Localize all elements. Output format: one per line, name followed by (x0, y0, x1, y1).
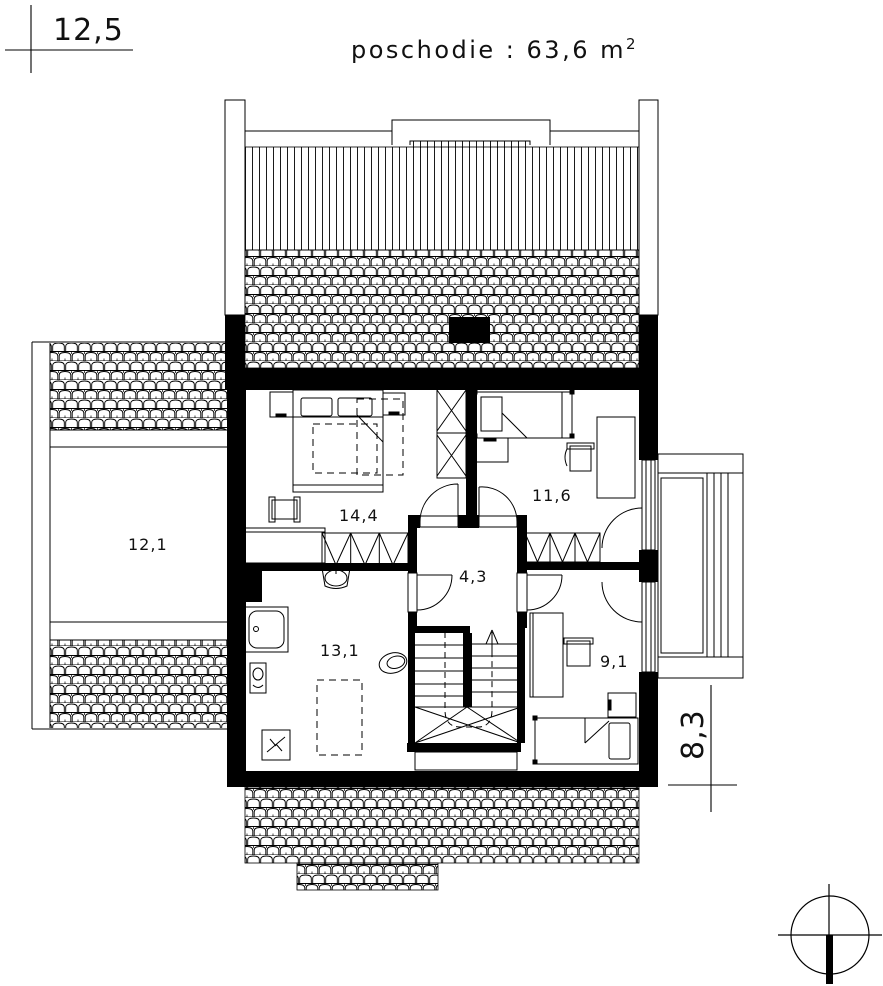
balcony (658, 454, 743, 678)
wall-stair-bottom (407, 743, 521, 752)
room-label-14-4: 14,4 (339, 506, 379, 525)
door-swings (417, 484, 642, 622)
desk (597, 417, 635, 498)
balcony-railing (707, 473, 728, 657)
wall-right-column (639, 315, 658, 368)
chimney-right-outline (639, 100, 658, 315)
floor-plan-drawing: poschodie : 63,6 m2 12,5 8,3 12,1 (0, 0, 883, 986)
shower-drain (254, 627, 259, 632)
wall-room9-north (517, 562, 639, 570)
dimension-width-label: 12,5 (53, 13, 124, 48)
door-arc-balcony-11-6 (602, 508, 642, 548)
roof-tiles-wing-top (50, 343, 227, 430)
bed-corner (473, 390, 477, 394)
door-threshold-11-6 (479, 516, 517, 527)
nightstand (475, 438, 508, 462)
duvet-outline (313, 424, 377, 473)
chair (567, 641, 590, 666)
room-label-11-6: 11,6 (532, 486, 572, 505)
bed-corner (473, 434, 477, 438)
room-label-13-1: 13,1 (320, 641, 360, 660)
nightstand (270, 392, 293, 417)
roof-north (225, 100, 658, 368)
wall-south (227, 771, 645, 787)
floor-plan-sheet: poschodie : 63,6 m2 12,5 8,3 12,1 (0, 0, 883, 986)
chair (570, 446, 591, 471)
wardrobe-band-14-4 (322, 533, 408, 565)
door-threshold-13-1 (408, 573, 417, 612)
desk (245, 528, 325, 563)
chair (272, 500, 297, 519)
wall-west (227, 390, 246, 787)
desk (530, 613, 563, 697)
blanket-fold (357, 415, 383, 442)
wall-east-a (639, 390, 658, 460)
bed-corner (570, 390, 574, 394)
wall-stair-top (415, 626, 470, 633)
toilet-seat (253, 685, 263, 688)
bed-corner (570, 434, 574, 438)
room-11-6-furniture (473, 390, 635, 498)
stair-direction-arrow (486, 630, 498, 652)
door-threshold-14-4 (420, 516, 458, 527)
roof-hatch-north (245, 147, 639, 250)
wall-corridor-right-b (517, 612, 527, 628)
room-label-9-1: 9,1 (600, 652, 628, 671)
nightstand-handle (276, 414, 286, 417)
room-9-1-furniture (530, 613, 638, 764)
wall-stair-left (408, 626, 415, 752)
balcony-door-9-1 (642, 582, 655, 672)
bed-corner (533, 760, 537, 764)
compass-needle (826, 935, 833, 984)
roof-south (245, 787, 639, 890)
wardrobes (322, 388, 600, 565)
wardrobe-band-11-6 (525, 533, 600, 562)
stair-treads-left (415, 645, 463, 696)
pillow (301, 398, 332, 416)
roof-tiles-wing-bottom (50, 640, 227, 728)
nightstand (608, 693, 636, 717)
wall-corridor-top-a (408, 515, 420, 528)
wall-corridor-top-c (517, 515, 527, 528)
stair-treads-right (472, 644, 517, 692)
wall-left-column (225, 315, 245, 368)
roof-tiles-south (245, 787, 639, 863)
pillow (609, 723, 630, 759)
pillow (338, 398, 372, 416)
nightstand-handle (389, 412, 399, 415)
wall-corridor-left-b (408, 612, 417, 628)
nightstand-handle (608, 700, 611, 710)
stair-winder-lines (415, 707, 521, 743)
page-title: poschodie : 63,6 m2 (351, 35, 638, 64)
wall-stair-right (517, 628, 525, 743)
door-arc-13-1 (417, 575, 452, 610)
duvet-outline (357, 399, 403, 475)
toilet-bowl (253, 668, 263, 680)
pillow (481, 397, 502, 431)
chimney-block (449, 317, 490, 343)
bed-corner (533, 716, 537, 720)
door-arc-9-1 (527, 575, 562, 610)
wall-north (225, 368, 658, 390)
nightstand-handle (484, 438, 496, 441)
left-wing: 12,1 (32, 342, 228, 729)
room-label-12-1: 12,1 (128, 535, 168, 554)
washing-machine-symbol (267, 737, 285, 752)
balcony-outline (658, 454, 743, 678)
wall-east-c (639, 672, 658, 787)
wardrobe-tall-14-4 (437, 388, 466, 478)
wall-east-b (639, 550, 658, 582)
wall-bath-stub (245, 571, 262, 602)
door-threshold-9-1 (517, 573, 527, 612)
wall-stair-divider (463, 633, 472, 707)
blanket-fold (585, 718, 609, 743)
balcony-bands (658, 473, 743, 657)
wall-corridor-top-b (458, 515, 479, 528)
void-outline (317, 680, 362, 755)
page-title-superscript: 2 (626, 35, 638, 53)
page-title-text: poschodie : 63,6 m (351, 36, 626, 64)
room-label-4-3: 4,3 (459, 567, 487, 586)
double-bed-lines (293, 417, 383, 485)
room-13-1-fixtures (245, 565, 409, 760)
bidet (377, 650, 409, 677)
door-arc-balcony-9-1 (602, 582, 642, 622)
balcony-door-11-6 (642, 460, 655, 550)
roof-tiles-north (245, 250, 639, 368)
stair-lower-landing (415, 752, 517, 770)
balcony-floor (661, 478, 703, 653)
chimney-left-outline (225, 100, 245, 315)
chair-arm (565, 449, 567, 466)
dimension-height-label: 8,3 (676, 709, 711, 760)
blanket-fold (502, 392, 562, 438)
shower-tray (249, 611, 284, 648)
roof-tiles-south-dormer (297, 863, 438, 890)
compass (778, 884, 882, 984)
